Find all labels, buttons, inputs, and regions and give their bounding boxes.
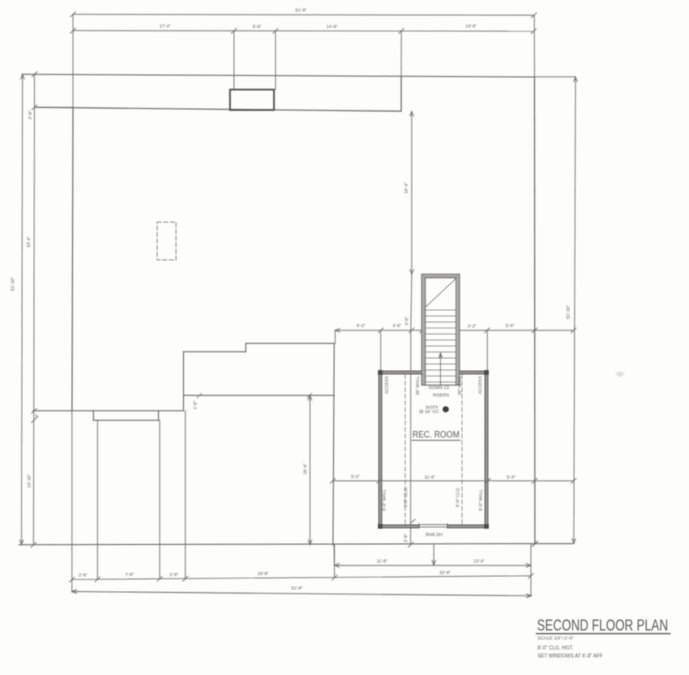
svg-text:5'-0" WALL: 5'-0" WALL <box>478 489 483 511</box>
svg-text:16'-4": 16'-4" <box>303 463 308 475</box>
svg-text:5'-0" CLG.: 5'-0" CLG. <box>455 487 460 507</box>
svg-text:ACCESS: ACCESS <box>384 376 389 394</box>
svg-text:2'-8": 2'-8" <box>28 110 33 119</box>
svg-text:5'-4": 5'-4" <box>507 474 516 479</box>
svg-text:32'-8": 32'-8" <box>439 570 451 575</box>
svg-text:5'-8": 5'-8" <box>253 24 262 29</box>
svg-text:14'-8": 14'-8" <box>326 24 338 29</box>
svg-text:2'-8": 2'-8" <box>79 573 88 578</box>
svg-text:RISERS: RISERS <box>433 393 449 398</box>
svg-text:51'-10": 51'-10" <box>566 305 571 319</box>
svg-text:ACCESS: ACCESS <box>477 376 482 394</box>
svg-text:2'-8": 2'-8" <box>170 572 179 577</box>
svg-text:5'-2": 5'-2" <box>351 474 360 479</box>
svg-text:3'-6": 3'-6" <box>404 316 409 325</box>
svg-text:5'-2": 5'-2" <box>357 323 366 328</box>
svg-text:11'-6": 11'-6" <box>424 474 435 479</box>
svg-text:DOWN 13: DOWN 13 <box>429 385 450 390</box>
svg-text:5'-0" CLG.: 5'-0" CLG. <box>403 487 408 507</box>
svg-text:51'-8": 51'-8" <box>295 8 307 13</box>
svg-text:2'-6": 2'-6" <box>403 533 408 542</box>
svg-text:3046 DH: 3046 DH <box>425 532 442 537</box>
svg-text:@ 16" OC: @ 16" OC <box>419 409 439 414</box>
svg-text:3'-2": 3'-2" <box>468 324 477 329</box>
svg-text:4'-6": 4'-6" <box>393 323 402 328</box>
svg-text:8'-0" CLG. HGT.: 8'-0" CLG. HGT. <box>538 646 574 652</box>
svg-text:16'-4": 16'-4" <box>404 182 409 194</box>
svg-text:14'-8": 14'-8" <box>465 23 477 28</box>
svg-text:13'-10": 13'-10" <box>27 474 32 488</box>
svg-text:REC. ROOM: REC. ROOM <box>413 430 460 440</box>
svg-text:SCALE 1/4"=1'-0": SCALE 1/4"=1'-0" <box>538 636 575 641</box>
svg-text:9": 9" <box>35 414 40 418</box>
svg-text:5'-6": 5'-6" <box>506 323 515 328</box>
svg-text:1'-6": 1'-6" <box>193 400 198 409</box>
svg-text:33'-4": 33'-4" <box>26 236 31 248</box>
svg-text:7'-8": 7'-8" <box>125 572 134 577</box>
svg-text:5'-0" WALL: 5'-0" WALL <box>381 489 386 511</box>
svg-text:17'-4": 17'-4" <box>159 23 171 28</box>
svg-text:51'-10": 51'-10" <box>10 277 15 291</box>
svg-text:36" WALL: 36" WALL <box>415 375 420 395</box>
svg-text:18'-8": 18'-8" <box>257 571 269 576</box>
svg-text:13'-4": 13'-4" <box>473 558 485 563</box>
svg-text:SET WINDOWS AT 6'-8" AFF: SET WINDOWS AT 6'-8" AFF <box>538 654 603 660</box>
svg-text:51'-8": 51'-8" <box>291 586 303 591</box>
svg-text:11'-8": 11'-8" <box>377 558 388 563</box>
svg-text:36" WALL: 36" WALL <box>457 375 462 395</box>
svg-text:SECOND FLOOR PLAN: SECOND FLOOR PLAN <box>537 618 668 635</box>
